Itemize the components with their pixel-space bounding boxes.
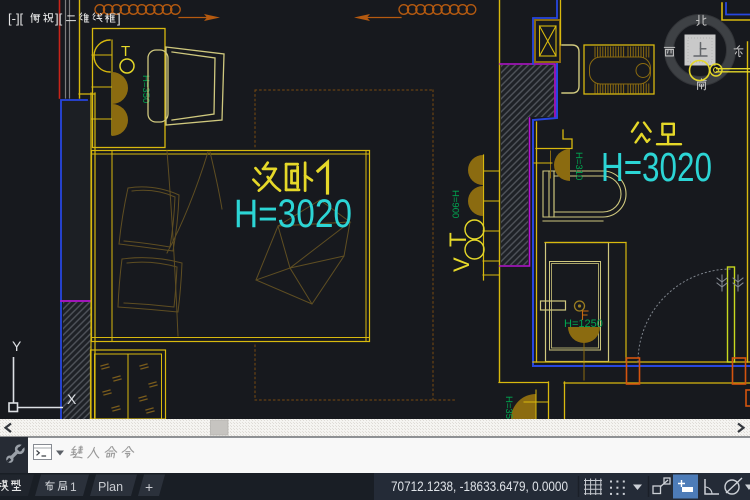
svg-text:H=3020: H=3020 — [601, 144, 712, 190]
svg-text:H=900: H=900 — [450, 190, 461, 218]
svg-text:T: T — [445, 232, 472, 247]
svg-text:Plan: Plan — [98, 480, 123, 494]
svg-text:X: X — [67, 391, 77, 407]
svg-text:V: V — [449, 257, 474, 272]
svg-text:H=310: H=310 — [573, 152, 584, 180]
svg-text:]: ] — [117, 11, 121, 26]
svg-text:H=350: H=350 — [140, 75, 151, 103]
svg-text:1: 1 — [70, 480, 77, 494]
svg-text:H=3020: H=3020 — [234, 192, 352, 236]
svg-text:][: ][ — [55, 11, 63, 26]
svg-text:Y: Y — [12, 338, 22, 354]
svg-text:+: + — [145, 479, 153, 495]
svg-text:T: T — [121, 43, 130, 60]
svg-text:[-][: [-][ — [8, 11, 24, 26]
svg-text:70712.1238, -18633.6479, 0.000: 70712.1238, -18633.6479, 0.0000 — [391, 478, 568, 494]
